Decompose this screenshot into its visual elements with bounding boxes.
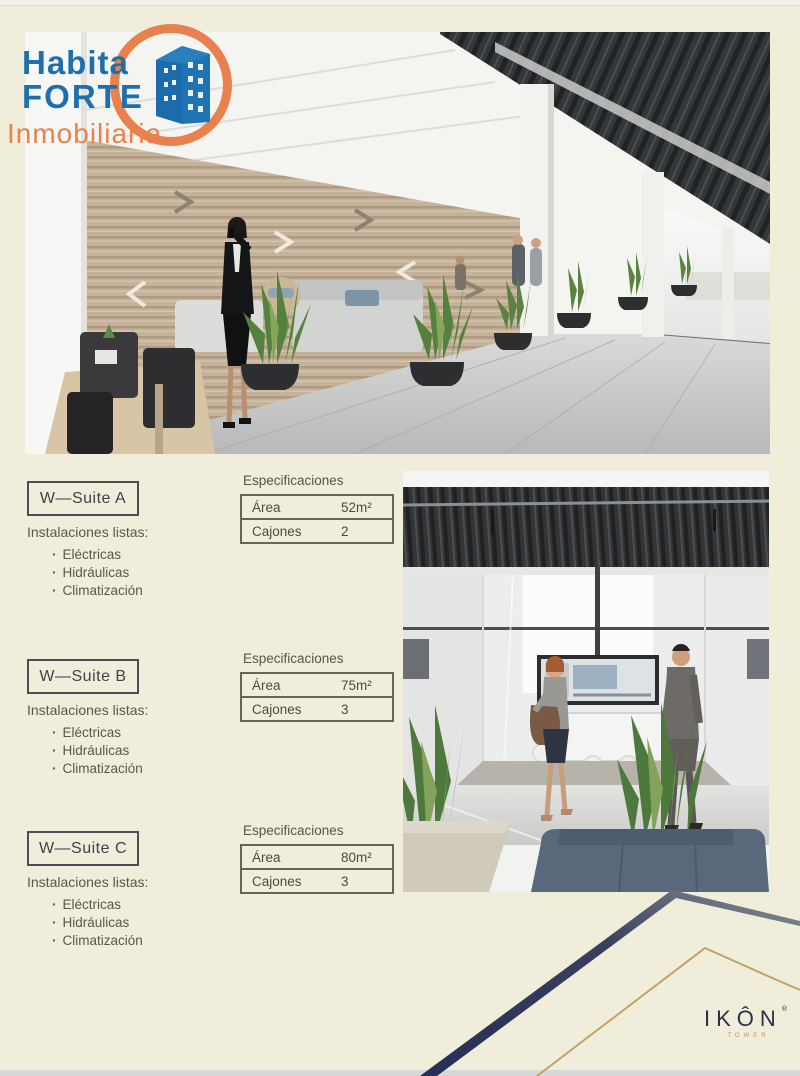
area-value: 80m² bbox=[341, 845, 393, 869]
hanger-rod bbox=[491, 511, 494, 535]
cajones-value: 2 bbox=[341, 519, 393, 543]
glass-frame-line bbox=[403, 627, 769, 630]
page-top-strip bbox=[0, 0, 800, 6]
cajones-label: Cajones bbox=[241, 519, 341, 543]
navy-mountain-line bbox=[420, 890, 800, 1076]
side-screen-right bbox=[747, 639, 769, 679]
spec-row-area: Área 75m² bbox=[241, 673, 393, 697]
spec-table: Área 75m² Cajones 3 bbox=[240, 672, 394, 722]
ikon-brand-name: IKÔN® bbox=[698, 1006, 793, 1032]
feature-list: Eléctricas Hidráulicas Climatización bbox=[52, 896, 143, 950]
feature-item: Eléctricas bbox=[52, 724, 143, 742]
logo-text-forte: FORTE bbox=[22, 80, 144, 113]
instalaciones-label: Instalaciones listas: bbox=[27, 702, 148, 718]
mountain-lines-decoration bbox=[380, 880, 800, 1076]
spec-table: Área 80m² Cajones 3 bbox=[240, 844, 394, 894]
habitaforte-logo: Habita FORTE Inmobiliaria bbox=[0, 8, 260, 158]
ikon-tower-logo: IKÔN® TOWER bbox=[698, 1006, 793, 1039]
cajones-value: 3 bbox=[341, 697, 393, 721]
spec-row-area: Área 52m² bbox=[241, 495, 393, 519]
registered-mark: ® bbox=[782, 1006, 787, 1013]
area-label: Área bbox=[241, 673, 341, 697]
spec-table: Área 52m² Cajones 2 bbox=[240, 494, 394, 544]
feature-item: Hidráulicas bbox=[52, 742, 143, 760]
spec-row-area: Área 80m² bbox=[241, 845, 393, 869]
feature-item: Eléctricas bbox=[52, 546, 143, 564]
meeting-room-rendering bbox=[403, 471, 769, 892]
column-small bbox=[722, 227, 734, 339]
cajones-label: Cajones bbox=[241, 697, 341, 721]
meeting-room-scene bbox=[403, 471, 769, 892]
spec-row-cajones: Cajones 3 bbox=[241, 869, 393, 893]
ceiling-beam bbox=[403, 567, 769, 575]
right-wall-panel bbox=[705, 575, 769, 789]
instalaciones-label: Instalaciones listas: bbox=[27, 524, 148, 540]
feature-item: Climatización bbox=[52, 760, 143, 778]
suite-a-name-box: W—Suite A bbox=[27, 481, 139, 516]
ikon-brand-sub: TOWER bbox=[698, 1033, 793, 1039]
cajones-label: Cajones bbox=[241, 869, 341, 893]
column-large bbox=[520, 84, 552, 336]
feature-item: Eléctricas bbox=[52, 896, 143, 914]
tv-pole bbox=[595, 567, 600, 657]
logo-text-habita: Habita bbox=[22, 46, 129, 79]
feature-item: Hidráulicas bbox=[52, 564, 143, 582]
column-mid bbox=[642, 172, 664, 337]
instalaciones-label: Instalaciones listas: bbox=[27, 874, 148, 890]
feature-list: Eléctricas Hidráulicas Climatización bbox=[52, 724, 143, 778]
tv-image bbox=[573, 665, 617, 689]
top-light-strip bbox=[403, 471, 769, 487]
planter-ledge-top bbox=[403, 821, 511, 833]
feature-item: Hidráulicas bbox=[52, 914, 143, 932]
building-icon bbox=[148, 38, 218, 130]
logo-text-inmobiliaria: Inmobiliaria bbox=[7, 118, 162, 150]
spec-title: Especificaciones bbox=[243, 823, 344, 838]
feature-item: Climatización bbox=[52, 582, 143, 600]
hanger-rod bbox=[713, 509, 716, 531]
spec-row-cajones: Cajones 2 bbox=[241, 519, 393, 543]
side-screen-left bbox=[403, 639, 429, 679]
suite-c-name-box: W—Suite C bbox=[27, 831, 139, 866]
feature-list: Eléctricas Hidráulicas Climatización bbox=[52, 546, 143, 600]
area-label: Área bbox=[241, 845, 341, 869]
spec-row-cajones: Cajones 3 bbox=[241, 697, 393, 721]
area-value: 75m² bbox=[341, 673, 393, 697]
area-label: Área bbox=[241, 495, 341, 519]
spec-title: Especificaciones bbox=[243, 651, 344, 666]
feature-item: Climatización bbox=[52, 932, 143, 950]
column-shade bbox=[548, 84, 554, 336]
blue-sofa-back bbox=[557, 829, 733, 845]
spec-title: Especificaciones bbox=[243, 473, 344, 488]
ikon-text: IKÔN bbox=[704, 1006, 782, 1031]
area-value: 52m² bbox=[341, 495, 393, 519]
suite-b-name-box: W—Suite B bbox=[27, 659, 139, 694]
